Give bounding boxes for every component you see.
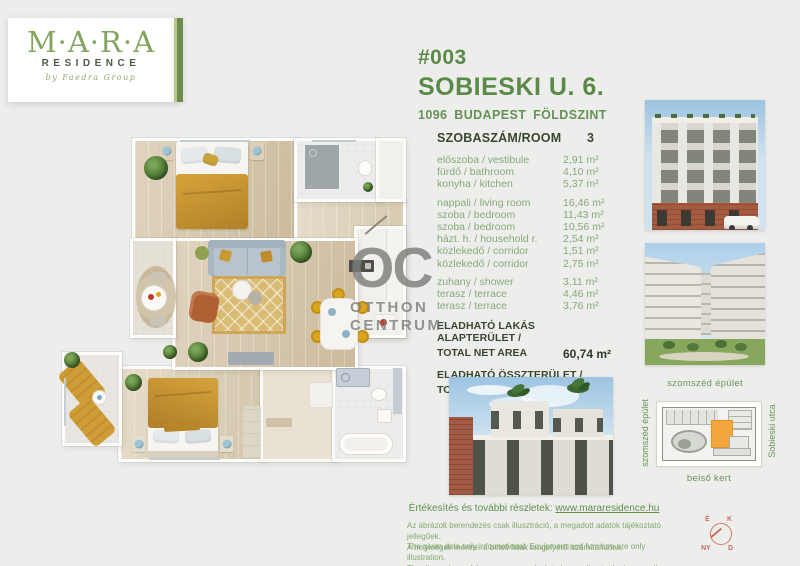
hall-cabinet <box>309 382 333 408</box>
table-row: konyha / kitchen5,37 m² <box>437 178 613 190</box>
plant <box>290 241 312 263</box>
row-value: 3,11 m² <box>563 276 613 288</box>
website-link[interactable]: www.mararesidence.hu <box>555 503 659 514</box>
courtyard-photo <box>645 243 765 365</box>
row-label: nappali / living room <box>437 197 530 209</box>
title-block: #003 SOBIESKI U. 6. 1096 BUDAPEST FÖLDSZ… <box>418 46 607 122</box>
siteplan-right-label: Sobieski utca <box>767 381 777 481</box>
building-mass <box>473 435 613 495</box>
bed <box>176 141 248 229</box>
row-value: 4,46 m² <box>563 288 613 300</box>
palm-tree <box>507 389 523 397</box>
disclaimer-line: The given data only informational. Equip… <box>407 541 669 563</box>
rooftop-photo <box>449 377 613 495</box>
row-value: 3,76 m² <box>563 300 613 312</box>
table-row: terasz / terrace3,76 m² <box>437 300 613 312</box>
brochure-page: M·A·R·A RESIDENCE by Faedra Group #003 S… <box>0 0 800 566</box>
sink <box>377 409 392 423</box>
chair <box>150 316 166 326</box>
site-plan <box>656 401 762 467</box>
total-label-hu: ELADHATÓ LAKÁS ALAPTERÜLET / <box>437 320 613 344</box>
washing-machine <box>336 368 370 387</box>
sales-info-line: Értékesítés és további részletek: www.ma… <box>404 503 664 514</box>
plant <box>363 182 373 192</box>
sideboard <box>228 352 274 365</box>
nightstand <box>250 142 264 160</box>
sofa <box>208 240 286 276</box>
side-table <box>248 291 262 305</box>
table-row: közlekedő / corridor1,51 m² <box>437 245 613 257</box>
bench <box>266 418 292 427</box>
bathtub <box>339 433 393 455</box>
site-plan-courtyard <box>671 430 707 453</box>
street-facade-photo <box>645 100 765 230</box>
rooms-header-label: SZOBASZÁM/ROOM <box>437 131 561 145</box>
palm-tree <box>567 383 589 393</box>
total-label-en: TOTAL NET AREA <box>437 347 527 361</box>
plant <box>188 342 208 362</box>
table-row: terasz / terrace4,46 m² <box>437 288 613 300</box>
row-value: 5,37 m² <box>563 178 613 190</box>
total-value: 60,74 m² <box>563 347 613 361</box>
compass-north: É <box>705 516 710 523</box>
city-line: 1096 BUDAPEST FÖLDSZINT <box>418 108 607 122</box>
siteplan-left-label: szomszéd épület <box>640 383 650 483</box>
room-spec-table: SZOBASZÁM/ROOM 3 előszoba / vestibule2,9… <box>437 131 613 398</box>
right-building <box>711 251 765 343</box>
row-value: 2,91 m² <box>563 154 613 166</box>
total-net-area-row: ELADHATÓ LAKÁS ALAPTERÜLET / TOTAL NET A… <box>437 320 613 361</box>
table-row: szoba / bedroom10,56 m² <box>437 221 613 233</box>
shower <box>303 143 341 191</box>
siteplan-bottom-label: belső kert <box>656 473 762 484</box>
row-value: 2,54 m² <box>563 233 613 245</box>
household-room <box>376 138 406 202</box>
armchair <box>188 290 221 324</box>
toilet <box>358 160 372 176</box>
window <box>312 140 356 142</box>
logo-green-stripe <box>174 18 183 102</box>
brick-column <box>449 417 473 495</box>
table-row: házt. h. / household r.2,54 m² <box>437 233 613 245</box>
glass-panel <box>393 368 402 414</box>
compass-rose: É K NY D <box>700 512 744 556</box>
row-label: közlekedő / corridor <box>437 258 529 270</box>
nightstand <box>220 436 233 452</box>
window <box>64 378 66 426</box>
window <box>150 458 220 460</box>
compass-south: D <box>728 545 733 552</box>
row-label: terasz / terrace <box>437 300 507 312</box>
row-value: 2,75 m² <box>563 258 613 270</box>
row-value: 10,56 m² <box>563 221 613 233</box>
disclaimer-line: Az ábrázolt berendezés csak illusztráció… <box>407 520 669 542</box>
roof-greenery <box>655 114 755 118</box>
table-header: SZOBASZÁM/ROOM 3 <box>437 131 613 145</box>
parked-car <box>724 216 760 229</box>
nightstand <box>132 436 145 452</box>
bed <box>148 378 218 458</box>
logo-residence-text: RESIDENCE <box>8 58 174 69</box>
rooms-count: 3 <box>587 131 613 145</box>
watermark-abbr: OC <box>350 240 443 297</box>
row-label: közlekedő / corridor <box>437 245 529 257</box>
toilet <box>371 388 387 401</box>
penthouse-left <box>491 401 549 437</box>
sales-prefix: Értékesítés és további részletek: <box>409 503 556 514</box>
table-row: közlekedő / corridor2,75 m² <box>437 258 613 270</box>
row-label: szoba / bedroom <box>437 221 515 233</box>
row-label: előszoba / vestibule <box>437 154 529 166</box>
site-plan-outline <box>662 407 756 461</box>
watermark-line2: CENTRUM <box>350 318 443 333</box>
chair <box>150 272 166 282</box>
plant <box>64 352 80 368</box>
table-row: fürdő / bathroom4,10 m² <box>437 166 613 178</box>
table-row: előszoba / vestibule2,91 m² <box>437 154 613 166</box>
logo-byline: by Faedra Group <box>8 73 174 82</box>
row-label: terasz / terrace <box>437 288 507 300</box>
terrace-side-table <box>92 390 107 405</box>
table-row: nappali / living room16,46 m² <box>437 197 613 209</box>
corridor-2 <box>260 366 336 462</box>
row-label: fürdő / bathroom <box>437 166 514 178</box>
garden-bushes <box>663 341 675 349</box>
plant <box>125 374 142 391</box>
wardrobe <box>243 406 261 458</box>
site-plan-block <box>713 448 751 456</box>
row-value: 16,46 m² <box>563 197 613 209</box>
table-row: zuhany / shower3,11 m² <box>437 276 613 288</box>
pouf <box>195 246 209 260</box>
disclaimer-en: The given data only informational. Equip… <box>407 541 669 566</box>
row-label: szoba / bedroom <box>437 209 515 221</box>
left-building <box>645 253 701 341</box>
plant <box>144 156 168 180</box>
window <box>180 140 250 142</box>
row-value: 4,10 m² <box>563 166 613 178</box>
logo-wordmark: M·A·R·A <box>8 27 174 57</box>
unit-number: #003 <box>418 46 607 70</box>
otthon-centrum-watermark: OC OTTHON CENTRUM <box>350 240 443 333</box>
plant <box>163 345 177 359</box>
penthouse-right <box>553 409 603 437</box>
row-value: 1,51 m² <box>563 245 613 257</box>
row-label: konyha / kitchen <box>437 178 513 190</box>
mara-residence-logo: M·A·R·A RESIDENCE by Faedra Group <box>8 18 174 102</box>
compass-west: NY <box>701 545 711 552</box>
compass-east: K <box>727 516 732 523</box>
street-address: SOBIESKI U. 6. <box>418 73 607 102</box>
watermark-line1: OTTHON <box>350 300 443 315</box>
row-label: házt. h. / household r. <box>437 233 537 245</box>
garden-path <box>659 352 749 361</box>
table-row: szoba / bedroom11,43 m² <box>437 209 613 221</box>
row-value: 11,43 m² <box>563 209 613 221</box>
terrace-table <box>141 285 167 311</box>
neighbor-building-label: szomszéd épület <box>645 378 765 389</box>
row-label: zuhany / shower <box>437 276 513 288</box>
